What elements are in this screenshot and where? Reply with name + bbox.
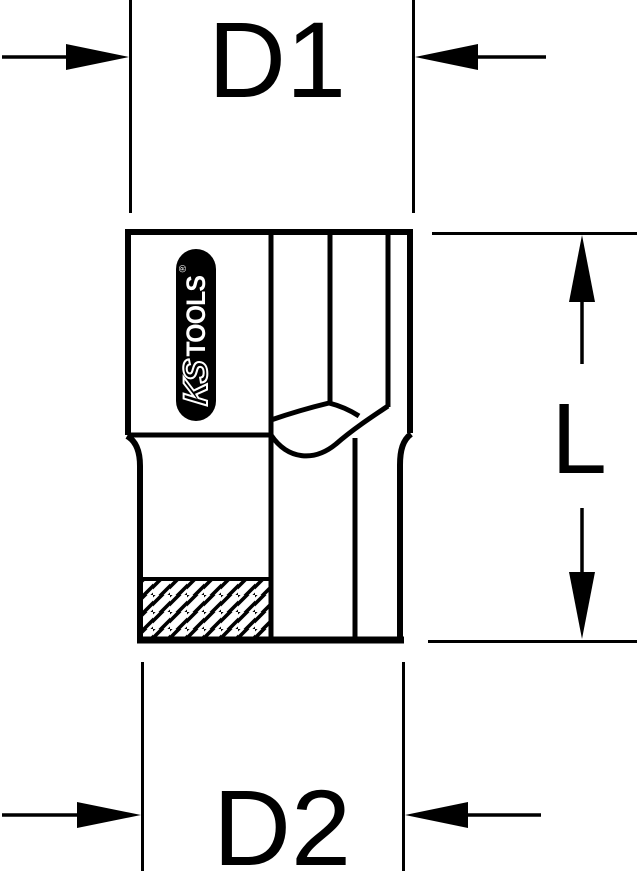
neck-left-edge — [127, 436, 140, 638]
registered-trademark-icon: ® — [179, 265, 189, 272]
d2-arrow-left-head — [77, 802, 141, 828]
hex-chamfer-upper-curve — [271, 403, 359, 420]
l-arrow-down-head — [569, 572, 595, 639]
neck-right-edge — [400, 434, 411, 638]
d1-arrow-right-head — [415, 44, 478, 70]
dimension-label-length: L — [551, 383, 607, 495]
logo-text-ks: KS — [179, 360, 213, 407]
dimension-label-d2: D2 — [213, 767, 351, 881]
ks-tools-logo: KS TOOLS ® — [176, 249, 216, 421]
socket-dimension-drawing: D1 D2 L — [0, 0, 638, 881]
dimension-label-d1: D1 — [208, 0, 346, 120]
logo-text-tools: TOOLS — [183, 276, 210, 357]
l-arrow-up-head — [569, 235, 595, 302]
drawing-canvas: D1 D2 L KS TOOLS ® — [0, 0, 638, 881]
knurl-band — [141, 579, 271, 639]
ks-tools-logo-pill: KS TOOLS ® — [176, 249, 216, 421]
d2-arrow-right-head — [405, 802, 468, 828]
d1-arrow-left-head — [66, 44, 129, 70]
